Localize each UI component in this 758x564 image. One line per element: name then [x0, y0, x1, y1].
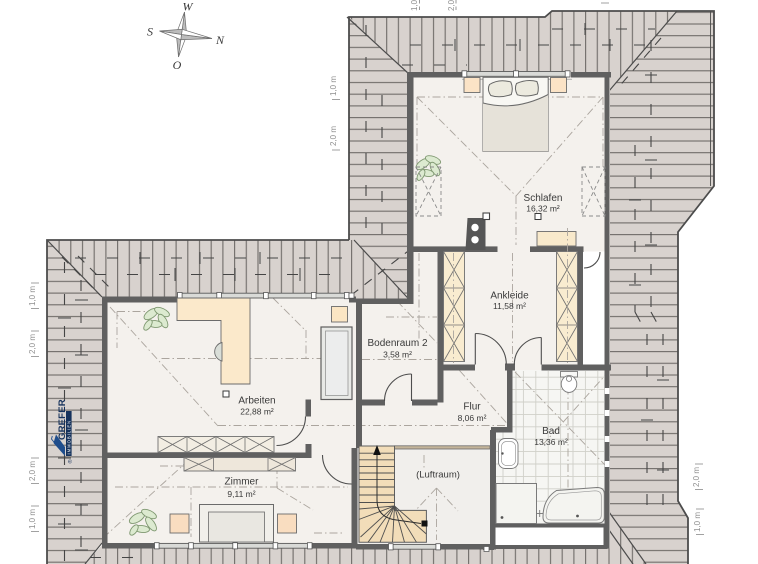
svg-text:S: S	[147, 25, 153, 39]
svg-text:1,0: 1,0	[410, 0, 419, 11]
svg-text:Bad: Bad	[542, 426, 560, 437]
svg-text:2,0 m: 2,0 m	[28, 334, 37, 354]
svg-text:2,0 m: 2,0 m	[28, 461, 37, 481]
svg-text:2,0 m: 2,0 m	[692, 467, 701, 487]
svg-text:Arbeiten: Arbeiten	[238, 396, 275, 407]
svg-text:N: N	[215, 33, 225, 47]
svg-text:1,0 m: 1,0 m	[28, 286, 37, 306]
svg-text:(Luftraum): (Luftraum)	[416, 470, 460, 481]
svg-text:Flur: Flur	[463, 402, 481, 413]
svg-text:Zimmer: Zimmer	[225, 477, 260, 488]
svg-text:3,58 m²: 3,58 m²	[383, 350, 412, 360]
svg-text:1,0 m: 1,0 m	[28, 509, 37, 529]
svg-text:Bodenraum 2: Bodenraum 2	[367, 338, 427, 349]
svg-text:IMMOBILIEN: IMMOBILIEN	[67, 420, 72, 455]
svg-text:Ankleide: Ankleide	[490, 291, 529, 302]
svg-text:16,32 m²: 16,32 m²	[526, 204, 560, 214]
svg-text:9,11 m²: 9,11 m²	[227, 489, 255, 499]
svg-text:Schlafen: Schlafen	[524, 193, 563, 204]
svg-text:22,88 m²: 22,88 m²	[240, 407, 274, 417]
svg-text:2,0 m: 2,0 m	[329, 126, 338, 146]
svg-text:O: O	[173, 58, 182, 72]
svg-text:W: W	[183, 0, 194, 14]
svg-text:13,36 m²: 13,36 m²	[534, 437, 568, 447]
svg-text:11,58 m²: 11,58 m²	[493, 301, 526, 311]
svg-text:1,0 m: 1,0 m	[693, 512, 702, 532]
svg-text:1,0 m: 1,0 m	[329, 76, 338, 96]
svg-text:®: ®	[67, 459, 74, 463]
svg-text:2,0: 2,0	[447, 0, 456, 11]
svg-text:8,06 m²: 8,06 m²	[458, 413, 487, 423]
